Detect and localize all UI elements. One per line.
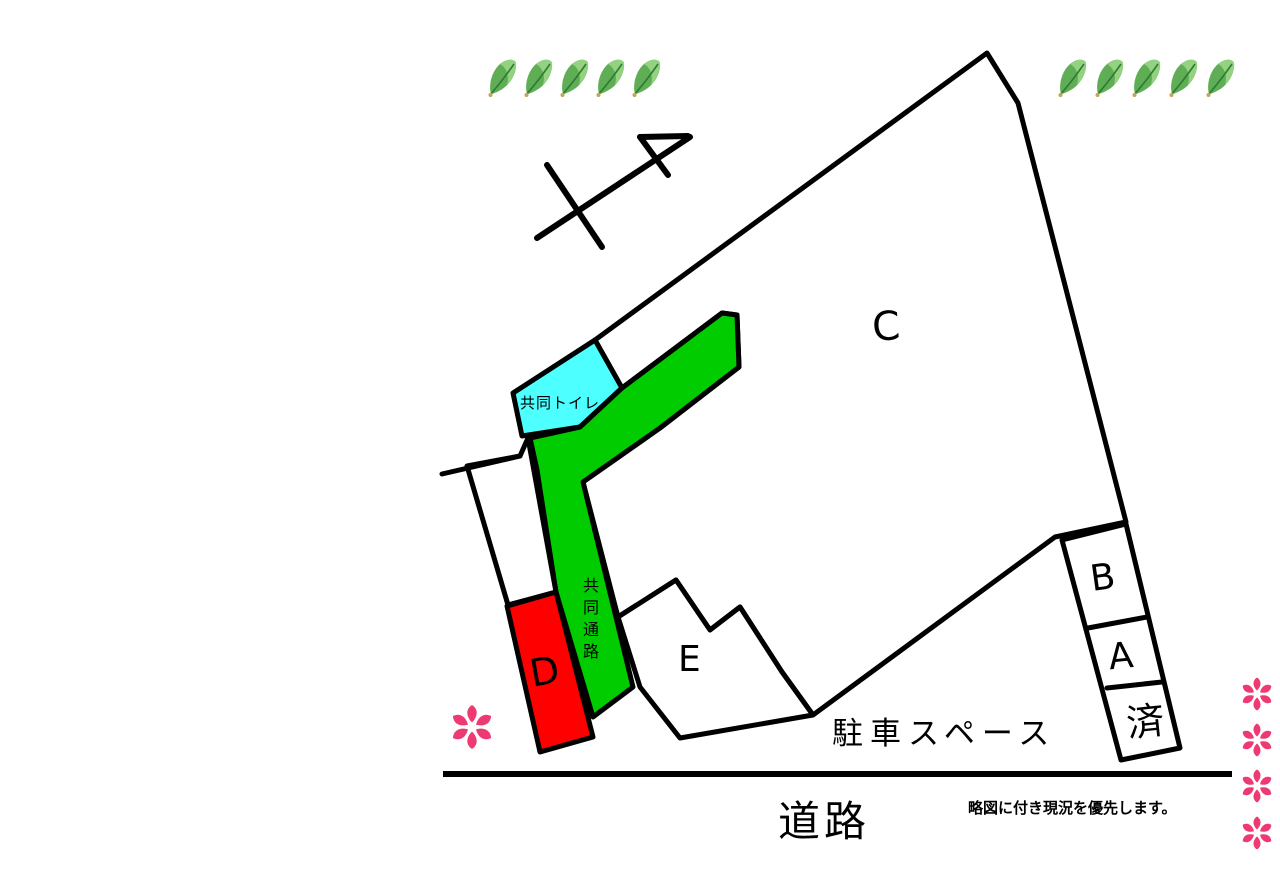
sketch-map: C B A 済 D E 共同トイレ 共 同 通 路 駐車スペース 道路 略図に付…: [0, 0, 1280, 891]
north-arrow-icon: [537, 136, 690, 247]
leaf-icon: [1207, 60, 1235, 97]
flower-icon: [1241, 678, 1273, 711]
leaf-icon: [489, 60, 517, 97]
leaf-icon: [561, 60, 589, 97]
parcel-a-label: A: [1106, 635, 1135, 678]
leaf-icon: [525, 60, 553, 97]
leaf-decorations: [489, 60, 1235, 97]
parking-space-label: 駐車スペース: [832, 716, 1056, 752]
passage-char-3: 通: [583, 620, 599, 639]
parcel-sold-label: 済: [1124, 698, 1166, 746]
flower-icon: [1241, 770, 1273, 803]
leaf-icon: [1170, 60, 1198, 97]
passage-char-1: 共: [583, 576, 599, 595]
road-label: 道路: [778, 797, 870, 846]
flower-icon: [1241, 817, 1273, 850]
shared-toilet-label: 共同トイレ: [520, 394, 600, 412]
leaf-icon: [633, 60, 661, 97]
sketch-map-page: C B A 済 D E 共同トイレ 共 同 通 路 駐車スペース 道路 略図に付…: [0, 0, 1280, 891]
passage-char-2: 同: [583, 598, 599, 617]
leaf-icon: [1096, 60, 1124, 97]
parcel-c-label: C: [871, 303, 902, 351]
flower-icon: [1241, 724, 1273, 757]
leaf-icon: [597, 60, 625, 97]
passage-char-4: 路: [583, 642, 599, 661]
flower-icon: [451, 705, 494, 749]
disclaimer-note: 略図に付き現況を優先します。: [968, 799, 1177, 817]
parcel-e-label: E: [678, 639, 701, 680]
leaf-icon: [1133, 60, 1161, 97]
leaf-icon: [1059, 60, 1087, 97]
